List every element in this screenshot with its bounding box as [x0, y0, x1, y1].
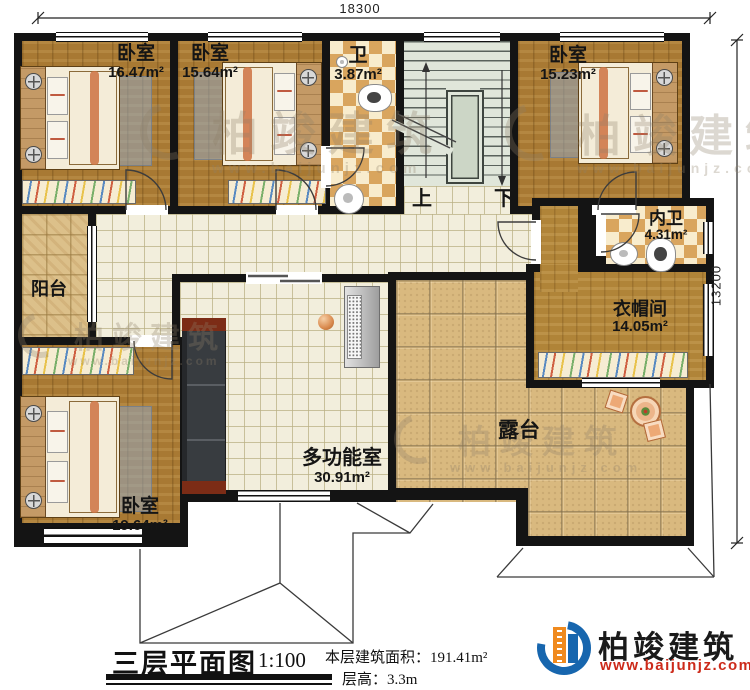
door-arc — [326, 148, 364, 186]
label-terrace: 露台 — [488, 420, 550, 443]
stair-marks — [392, 62, 506, 186]
roof-outline — [140, 384, 714, 643]
company-url: www.baijunjz.com — [600, 657, 750, 674]
room-name: 多功能室 — [290, 448, 394, 470]
dimension-right: 13200 — [709, 256, 724, 316]
door-arc — [276, 170, 316, 210]
label-bedroom-bl: 卧室 19.64m² — [102, 497, 178, 534]
floor-area-line: 本层建筑面积：191.41m² — [325, 646, 487, 667]
room-name: 卧室 — [530, 46, 606, 67]
room-name: 内卫 — [636, 210, 696, 228]
plan-linework — [0, 0, 750, 690]
room-area: 19.64m² — [102, 518, 178, 534]
room-name: 露台 — [488, 420, 550, 443]
room-area: 14.05m² — [598, 319, 682, 335]
company-logo-icon — [536, 620, 592, 676]
room-area: 15.64m² — [172, 65, 248, 81]
stair-down-label: 下 — [494, 182, 514, 211]
title-underline-thin — [106, 683, 332, 685]
logo-building-blue — [568, 634, 578, 663]
label-balcony: 阳台 — [22, 280, 76, 299]
title-underline-thick — [106, 674, 332, 680]
floor-area-label: 本层建筑面积： — [325, 650, 430, 666]
label-bedroom-tm: 卧室 15.64m² — [172, 44, 248, 81]
room-name: 衣帽间 — [598, 300, 682, 319]
label-bedroom-tl: 卧室 16.47m² — [100, 44, 172, 81]
door-arc — [498, 222, 536, 260]
room-area: 4.31m² — [636, 228, 696, 243]
floor-height-value: 3.3m — [387, 672, 417, 688]
room-area: 15.23m² — [530, 67, 606, 83]
door-arc — [601, 214, 639, 252]
floor-height-label: 层高： — [342, 672, 387, 688]
label-bath: 卫 3.87m² — [326, 46, 390, 83]
room-name: 卫 — [326, 46, 390, 67]
floor-height-line: 层高：3.3m — [342, 668, 417, 689]
floor-plan-canvas: 卧室 16.47m² 卧室 15.64m² 卫 3.87m² 卧室 15.23m… — [0, 0, 750, 690]
room-area: 16.47m² — [100, 65, 172, 81]
door-arc — [598, 172, 636, 210]
label-multiroom: 多功能室 30.91m² — [290, 448, 394, 486]
room-area: 3.87m² — [326, 67, 390, 83]
floor-area-value: 191.41m² — [430, 650, 487, 666]
dimension-top: 18300 — [330, 1, 390, 16]
room-name: 卧室 — [172, 44, 248, 65]
room-name: 卧室 — [102, 497, 178, 518]
door-arc — [134, 341, 172, 379]
door-arc — [126, 170, 166, 210]
label-inner-bath: 内卫 4.31m² — [636, 210, 696, 243]
plan-scale: 1:100 — [258, 648, 306, 673]
label-bedroom-tr: 卧室 15.23m² — [530, 46, 606, 83]
room-name: 阳台 — [22, 280, 76, 299]
room-name: 卧室 — [100, 44, 172, 65]
stair-up-label: 上 — [412, 182, 432, 211]
logo-building-orange — [553, 627, 566, 663]
room-area: 30.91m² — [290, 470, 394, 486]
label-closet: 衣帽间 14.05m² — [598, 300, 682, 336]
